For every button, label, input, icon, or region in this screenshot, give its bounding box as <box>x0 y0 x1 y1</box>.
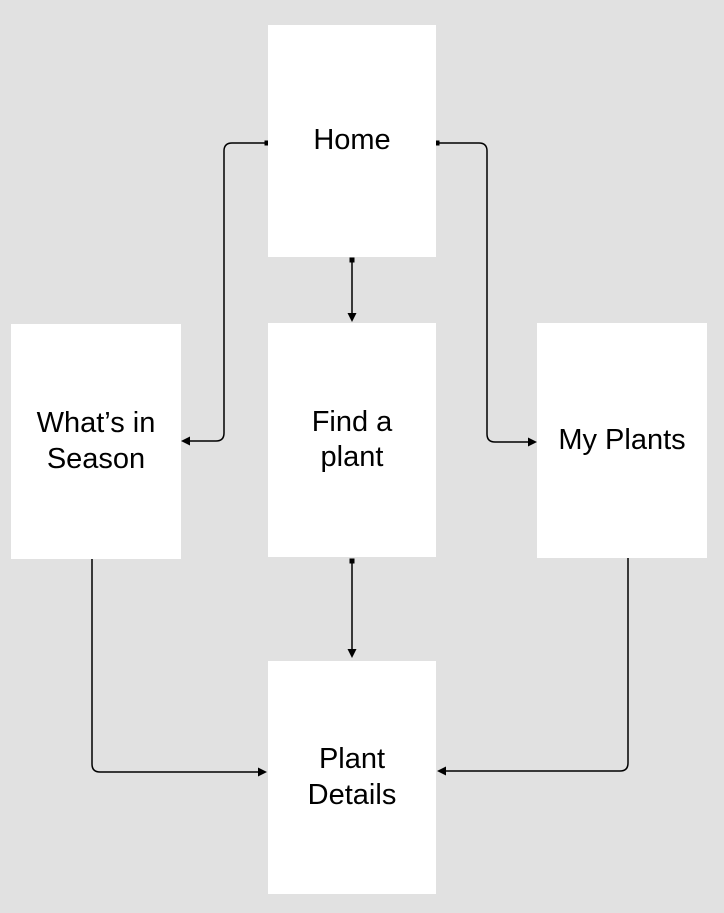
edge-whats-in-season-to-plant-details <box>92 559 267 777</box>
arrowhead-down-icon <box>348 313 357 322</box>
edge-home-to-my-plants <box>435 141 538 447</box>
arrowhead-right-icon <box>528 438 537 447</box>
node-plant-details[interactable]: Plant Details <box>268 661 436 894</box>
arrowhead-left-icon <box>437 767 446 776</box>
edge-my-plants-to-plant-details <box>437 558 628 776</box>
node-find-a-plant-label: Find a plant <box>296 405 408 476</box>
arrowhead-left-icon <box>181 437 190 446</box>
arrowhead-down-icon <box>348 649 357 658</box>
node-plant-details-label: Plant Details <box>291 742 413 813</box>
edge-home-to-find-a-plant <box>348 258 357 323</box>
node-whats-in-season[interactable]: What’s in Season <box>11 324 181 559</box>
node-find-a-plant[interactable]: Find a plant <box>268 323 436 557</box>
node-my-plants-label: My Plants <box>558 423 685 458</box>
edge-find-a-plant-to-plant-details <box>348 559 357 659</box>
node-home-label: Home <box>313 123 390 158</box>
flow-diagram-canvas: Home What’s in Season Find a plant My Pl… <box>0 0 724 913</box>
node-my-plants[interactable]: My Plants <box>537 323 707 558</box>
edge-start-dot <box>350 559 355 564</box>
arrowhead-right-icon <box>258 768 267 777</box>
node-home[interactable]: Home <box>268 25 436 257</box>
edge-home-to-whats-in-season <box>181 141 270 446</box>
node-whats-in-season-label: What’s in Season <box>21 406 171 477</box>
edge-start-dot <box>350 258 355 263</box>
